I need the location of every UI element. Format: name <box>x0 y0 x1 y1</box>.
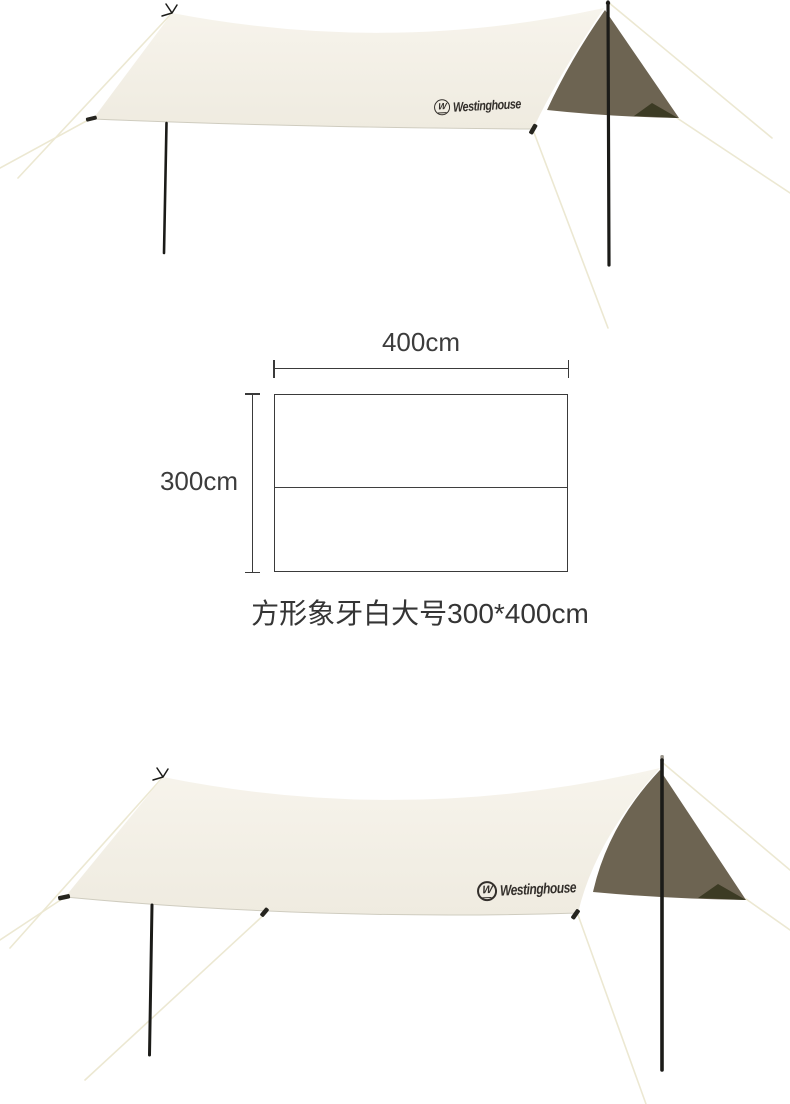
tarp-outline-rectangle <box>274 394 568 572</box>
height-dimension-line <box>252 394 253 572</box>
size-caption: 方形象牙白大号300*400cm <box>120 598 720 630</box>
width-tick-right <box>568 360 570 378</box>
brand-wordmark: Westinghouse <box>500 879 577 899</box>
brand-w-circle-icon: W <box>477 881 498 902</box>
tarp-illustration-bottom <box>0 740 790 1104</box>
brand-w-circle-icon: W <box>434 99 451 116</box>
tarp-fold-line <box>275 487 567 488</box>
height-tick-top <box>245 393 260 395</box>
brand-wordmark: Westinghouse <box>453 96 522 115</box>
height-tick-bottom <box>245 572 260 574</box>
width-dimension-label: 400cm <box>321 328 521 356</box>
tarp-illustration-top <box>0 0 790 332</box>
front-pole <box>150 905 153 1055</box>
width-dimension-line <box>274 368 568 369</box>
tarp-canopy-panel <box>93 8 604 129</box>
brand-w-letter: W <box>481 885 493 898</box>
brand-w-letter: W <box>437 102 446 113</box>
height-dimension-label: 300cm <box>99 467 299 495</box>
front-pole <box>164 123 167 253</box>
rear-pole <box>660 755 664 1070</box>
product-detail-image: W Westinghouse 400cm 300cm 方形象牙白大号300*40… <box>0 0 790 1104</box>
width-tick-left <box>273 360 275 378</box>
